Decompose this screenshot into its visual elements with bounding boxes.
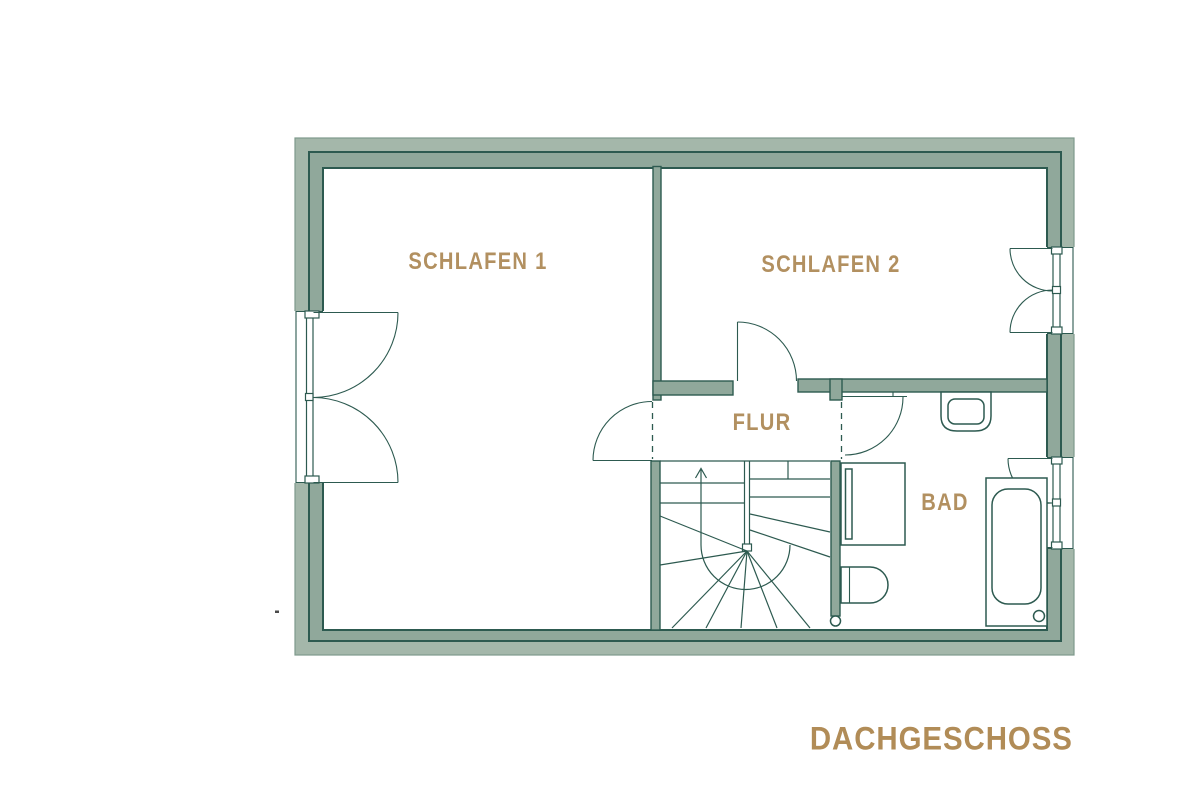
room-label-flur: FLUR [733, 409, 792, 437]
room-label-schlafen2: SCHLAFEN 2 [761, 251, 900, 279]
bathtub [986, 478, 1047, 626]
shower-glass-panel [846, 469, 853, 539]
window-mullion [1053, 287, 1061, 294]
room-label-schlafen1: SCHLAFEN 1 [408, 248, 547, 276]
window-sill-bottom [1052, 327, 1063, 334]
window-mullion [306, 394, 314, 401]
wall-flur-schlafen2-left [653, 381, 733, 395]
window-sill-bottom [1052, 542, 1063, 549]
toilet [841, 567, 888, 603]
floor-plan-canvas [0, 0, 1200, 800]
sink-basin [948, 399, 984, 424]
floor-title: DACHGESCHOSS [810, 721, 1073, 758]
room-label-bad: BAD [921, 489, 968, 517]
wall-stairs-right [831, 461, 840, 616]
sink [941, 392, 991, 431]
window-mullion [1053, 499, 1061, 506]
print-artifact-dot [275, 611, 279, 614]
wall-schlafen1-schlafen2 [653, 167, 661, 401]
wall-stairs-left [651, 461, 660, 630]
toilet-bowl [841, 567, 888, 603]
shower [841, 463, 905, 545]
window-sill-top [1052, 457, 1063, 464]
bathtub-basin [992, 489, 1041, 604]
pipe-circle-stair-wall [831, 616, 841, 626]
wall-junction-block [830, 379, 842, 400]
pipe-circle-bathtub [1034, 611, 1045, 622]
window-sill-top [1052, 247, 1063, 254]
floor-plan-page: SCHLAFEN 1 SCHLAFEN 2 FLUR BAD DACHGESCH… [0, 0, 1200, 800]
